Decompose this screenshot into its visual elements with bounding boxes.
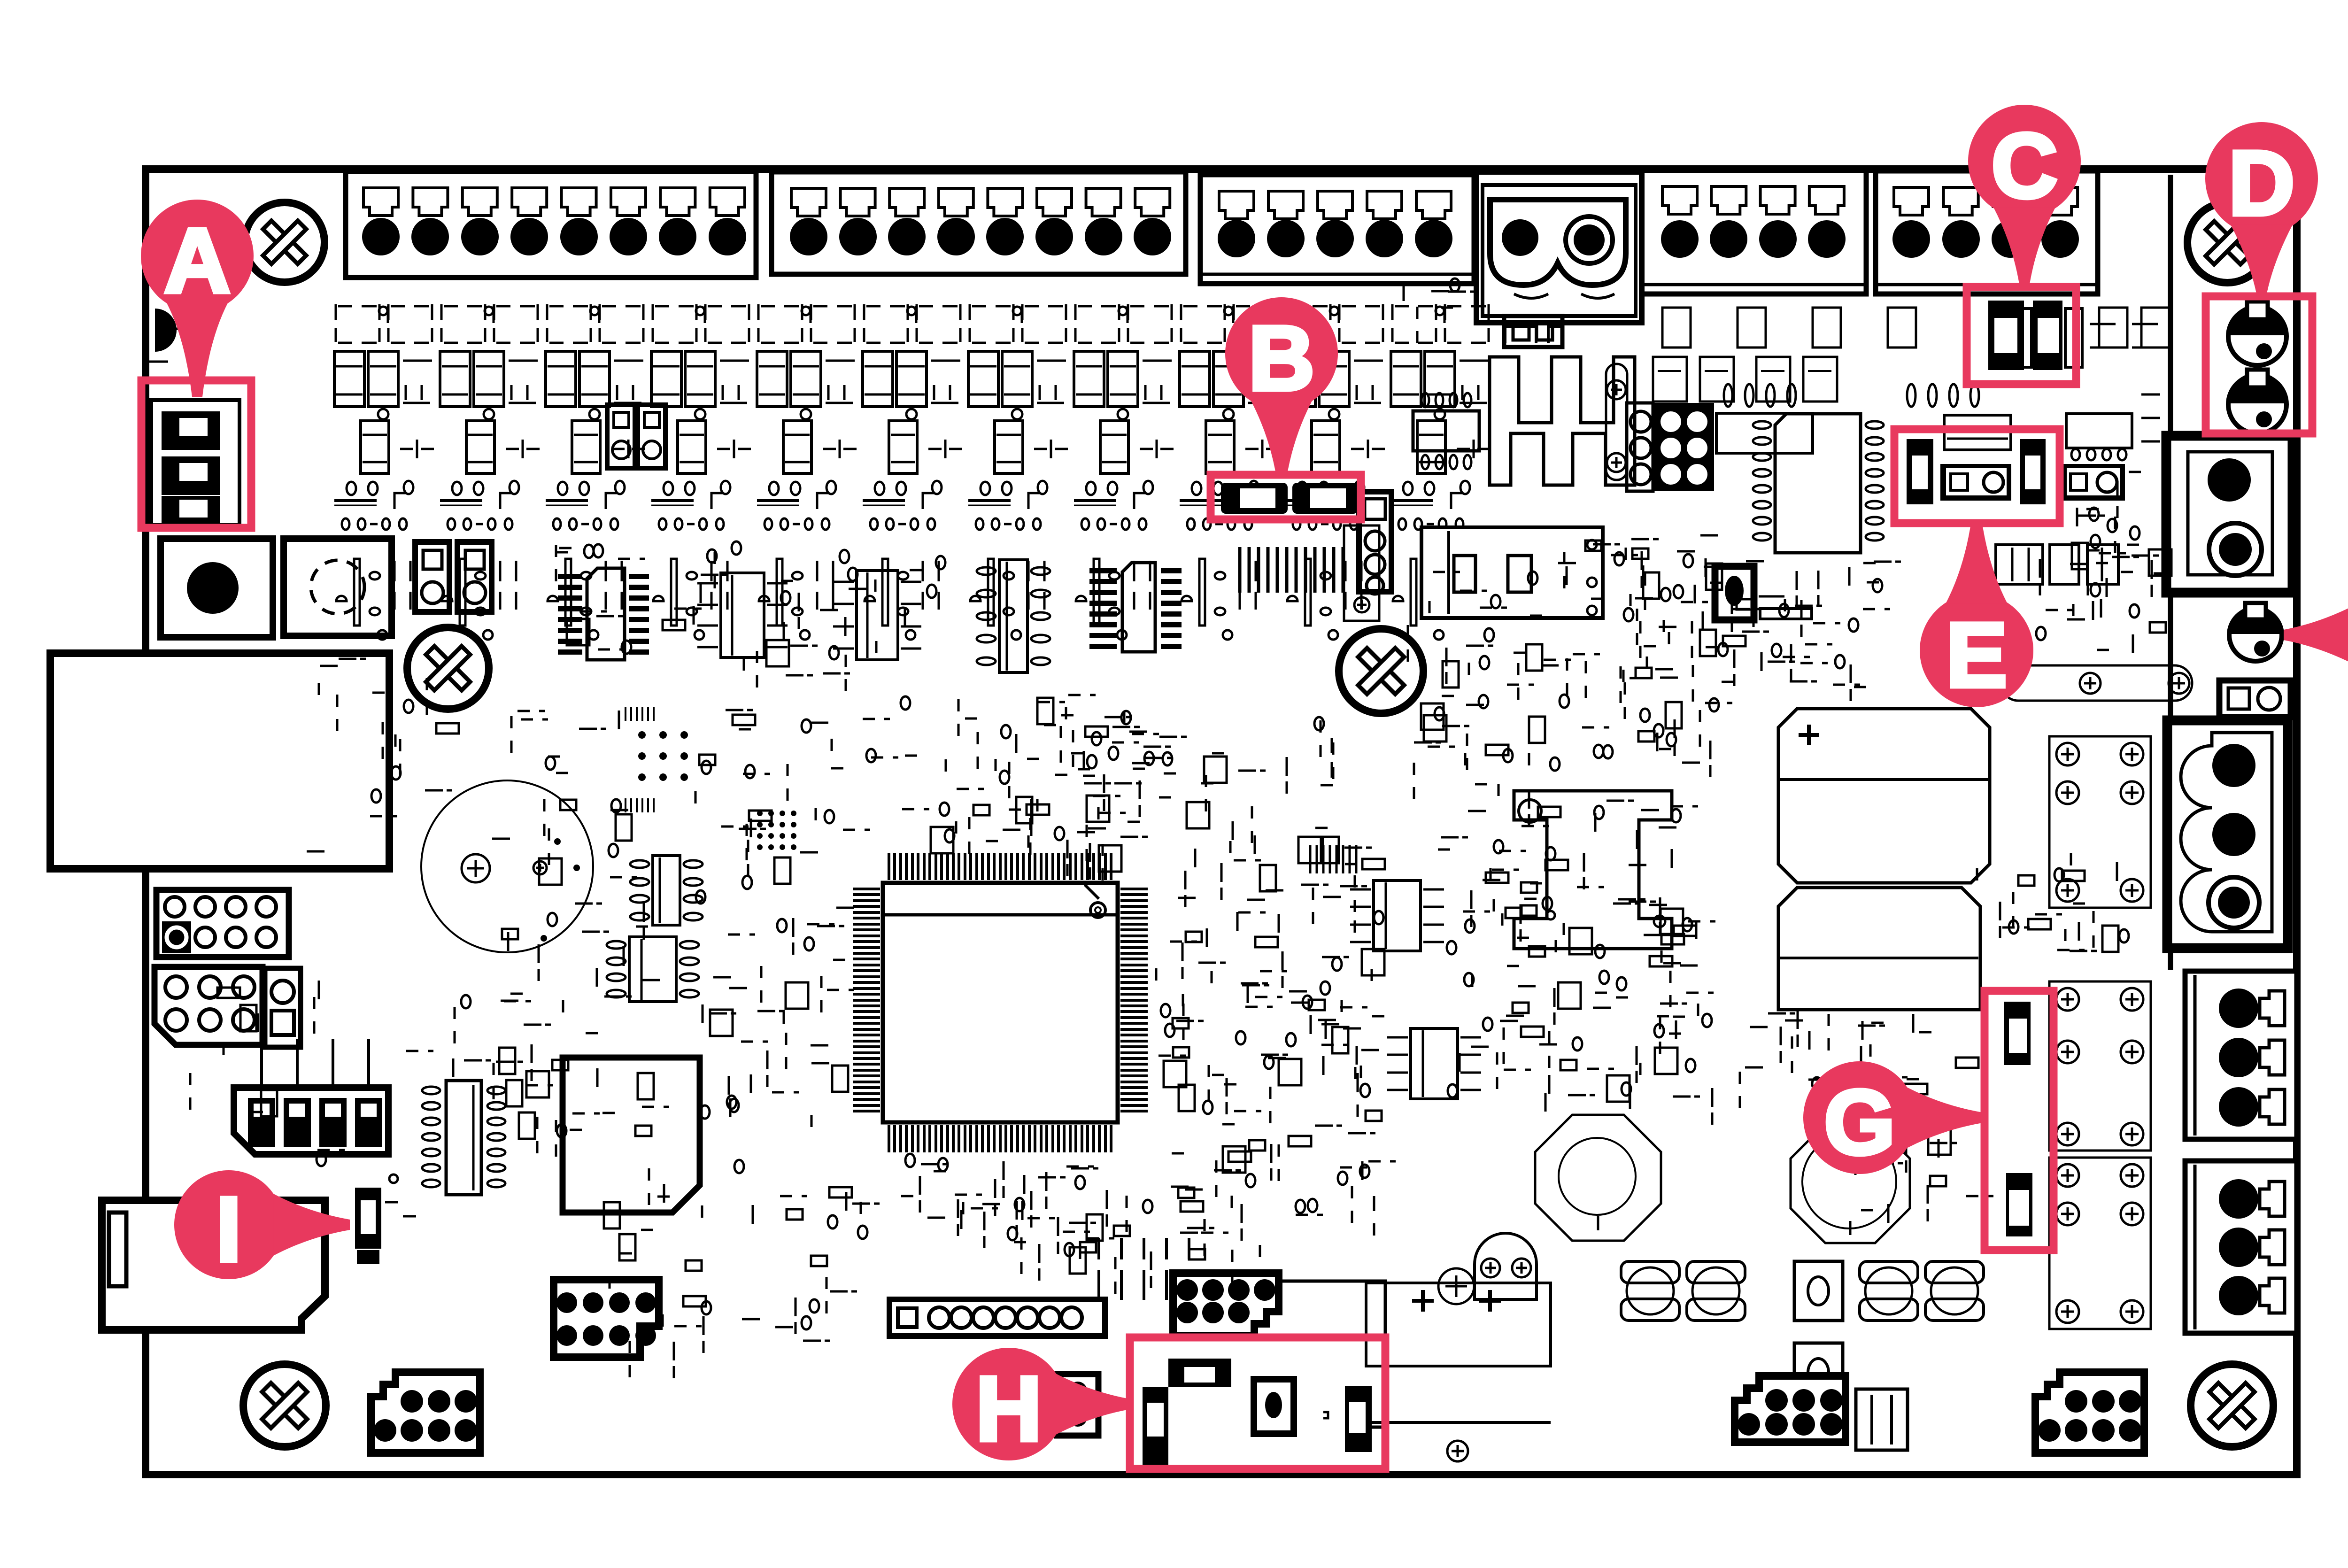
svg-text:D: D (2229, 132, 2295, 234)
svg-text:B: B (1249, 307, 1315, 409)
svg-text:I: I (216, 1178, 241, 1281)
svg-text:H: H (976, 1358, 1042, 1460)
svg-text:C: C (1992, 115, 2058, 217)
svg-text:A: A (164, 209, 231, 312)
svg-text:E: E (1946, 604, 2007, 706)
svg-text:G: G (1824, 1071, 1895, 1174)
